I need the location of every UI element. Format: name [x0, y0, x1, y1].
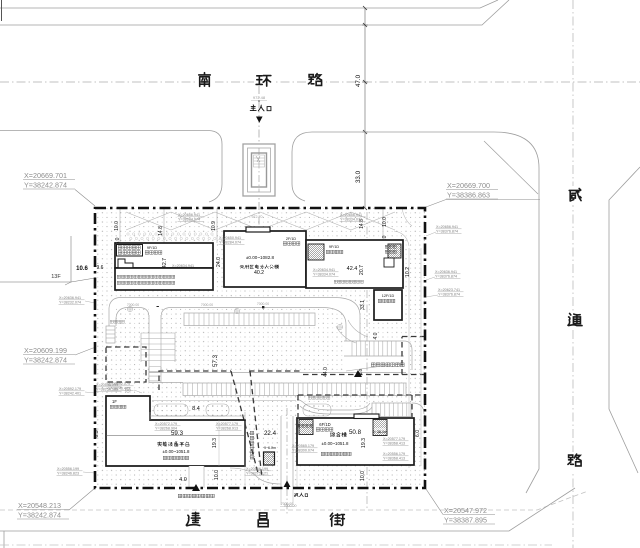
svg-text:Y=38254.186: Y=38254.186 [96, 388, 118, 392]
svg-text:13F: 13F [51, 274, 61, 280]
svg-text:±0.00~1051.8: ±0.00~1051.8 [163, 449, 191, 454]
svg-text:Y=38376.874: Y=38376.874 [438, 293, 460, 297]
svg-text:24.0: 24.0 [216, 257, 222, 267]
svg-text:57.3: 57.3 [212, 354, 219, 367]
svg-text:40.2: 40.2 [254, 270, 264, 276]
svg-text:4.0: 4.0 [373, 332, 379, 339]
svg-text:Y=38334.074: Y=38334.074 [313, 273, 335, 277]
svg-text:X=20609.199: X=20609.199 [24, 346, 67, 355]
svg-text:Y=38300.074: Y=38300.074 [292, 449, 314, 453]
svg-text:X=20656.941: X=20656.941 [178, 213, 200, 217]
svg-text:X=20556.199: X=20556.199 [57, 467, 79, 471]
svg-text:Y=38368.413: Y=38368.413 [383, 442, 405, 446]
svg-text:44.0: 44.0 [323, 367, 329, 377]
svg-text:Y=38232.074: Y=38232.074 [59, 301, 81, 305]
svg-text:19.3: 19.3 [361, 438, 367, 448]
svg-text:50.8: 50.8 [349, 429, 362, 436]
svg-text:X=20572.179: X=20572.179 [155, 422, 177, 426]
svg-text:±0.00~1082.8: ±0.00~1082.8 [246, 255, 275, 260]
svg-text:10.6: 10.6 [76, 266, 88, 272]
svg-text:8.4: 8.4 [192, 406, 200, 412]
svg-text:X=20592.179: X=20592.179 [59, 387, 81, 391]
svg-text:±0.00~1051.8: ±0.00~1051.8 [322, 441, 350, 446]
svg-text:12F/1D: 12F/1D [382, 294, 395, 298]
svg-text:X=20577.179: X=20577.179 [383, 437, 405, 441]
svg-text:Y=38387.895: Y=38387.895 [444, 516, 487, 525]
svg-text:X=20636.941: X=20636.941 [435, 270, 457, 274]
svg-text:X=20548.213: X=20548.213 [18, 501, 61, 510]
svg-text:9F/1D: 9F/1D [147, 246, 158, 250]
svg-text:42.4: 42.4 [347, 266, 358, 272]
svg-text:33.1: 33.1 [360, 300, 366, 310]
svg-text:7000.00: 7000.00 [201, 303, 213, 307]
svg-text:X=20577.179: X=20577.179 [216, 422, 238, 426]
svg-text:Y=38376.874: Y=38376.874 [436, 230, 458, 234]
svg-text:9~6.0m: 9~6.0m [264, 446, 276, 450]
svg-text:Y=38368.413: Y=38368.413 [383, 457, 405, 461]
svg-text:Y=38268.904: Y=38268.904 [155, 427, 177, 431]
svg-text:Y=38242.874: Y=38242.874 [24, 356, 67, 365]
svg-text:20.7: 20.7 [359, 265, 365, 275]
svg-text:X=20565.179: X=20565.179 [292, 444, 314, 448]
svg-text:X=20556.199: X=20556.199 [246, 467, 268, 471]
svg-text:6F/1D: 6F/1D [319, 422, 330, 427]
svg-text:47.0: 47.0 [355, 74, 362, 87]
svg-text:42.7: 42.7 [162, 258, 168, 268]
svg-text:Y=38376.874: Y=38376.874 [435, 275, 457, 279]
svg-text:1F: 1F [112, 399, 117, 404]
svg-text:X=20634.941: X=20634.941 [313, 268, 335, 272]
svg-text:X=20669.700: X=20669.700 [447, 181, 490, 190]
svg-text:9~36.0m: 9~36.0m [373, 430, 388, 434]
svg-text:33.0: 33.0 [355, 170, 362, 183]
svg-text:6.0: 6.0 [415, 430, 421, 437]
svg-text:59.3: 59.3 [171, 430, 184, 437]
svg-text:9F/1D: 9F/1D [329, 245, 340, 249]
svg-text:7000.00: 7000.00 [127, 303, 139, 307]
svg-text:7000.00: 7000.00 [281, 502, 293, 506]
svg-text:Y=38386.863: Y=38386.863 [447, 191, 490, 200]
svg-text:Y=38234.074: Y=38234.074 [178, 218, 200, 222]
svg-text:10.0: 10.0 [214, 470, 220, 480]
svg-text:Y=38275.121: Y=38275.121 [246, 472, 268, 476]
svg-text:4.0: 4.0 [358, 368, 363, 375]
svg-text:X=20656.941: X=20656.941 [436, 225, 458, 229]
svg-text:X=20623.741: X=20623.741 [438, 288, 460, 292]
svg-text:Y=38242.874: Y=38242.874 [18, 511, 61, 520]
svg-text:X=20669.701: X=20669.701 [24, 171, 67, 180]
svg-text:972.48: 972.48 [253, 95, 266, 100]
svg-text:2F/1D: 2F/1D [286, 237, 297, 241]
svg-text:X=20556.179: X=20556.179 [383, 452, 405, 456]
svg-text:Y=38242.401: Y=38242.401 [59, 392, 81, 396]
svg-text:Y=38246.823: Y=38246.823 [57, 472, 79, 476]
svg-text:10.2: 10.2 [405, 267, 411, 277]
svg-text:X=20656.941: X=20656.941 [340, 213, 362, 217]
svg-text:Y=38284.074: Y=38284.074 [219, 241, 241, 245]
svg-text:19.3: 19.3 [212, 438, 218, 448]
svg-text:10.0: 10.0 [382, 217, 388, 227]
svg-text:Y=38242.874: Y=38242.874 [24, 181, 67, 190]
svg-text:972.70: 972.70 [252, 215, 263, 219]
svg-text:9.6: 9.6 [97, 265, 104, 271]
svg-text:X=20650.941: X=20650.941 [219, 236, 241, 240]
svg-text:7000.00: 7000.00 [257, 302, 269, 306]
svg-text:10.9: 10.9 [211, 221, 217, 231]
svg-text:Y=38268.913: Y=38268.913 [216, 427, 238, 431]
svg-text:Y=38334.074: Y=38334.074 [340, 218, 362, 222]
svg-text:22.4: 22.4 [264, 430, 277, 437]
svg-text:10.0: 10.0 [114, 221, 120, 231]
svg-text:X=20636.941: X=20636.941 [59, 296, 81, 300]
svg-text:14.8: 14.8 [158, 226, 164, 236]
svg-text:X=20547.972: X=20547.972 [444, 506, 487, 515]
svg-text:10.0: 10.0 [360, 471, 366, 481]
svg-text:4.0: 4.0 [179, 477, 187, 483]
svg-text:X=20594.199: X=20594.199 [96, 383, 118, 387]
